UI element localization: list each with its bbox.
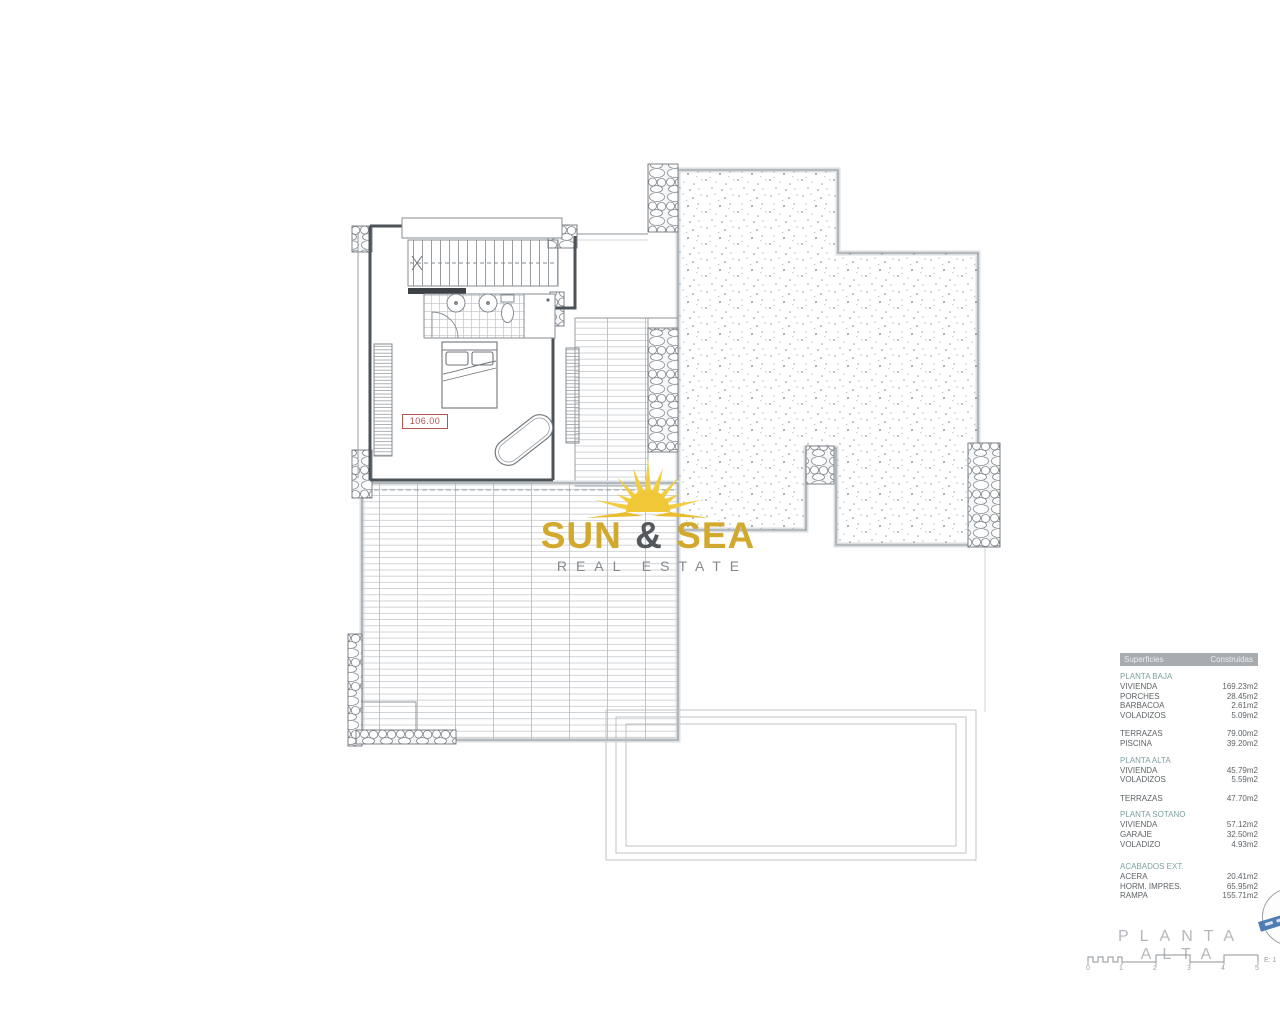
table-row: PORCHES28.45m2 (1120, 692, 1258, 702)
staircase (402, 218, 562, 294)
table-section-terrazas-alta: TERRAZAS47.70m2 (1120, 794, 1258, 804)
areas-table: Superficies Construidas PLANTA BAJA VIVI… (1120, 653, 1258, 901)
row-label: TERRAZAS (1120, 729, 1163, 739)
table-row: ACERA20.41m2 (1120, 872, 1258, 882)
sink-icon (447, 294, 465, 312)
row-label: VOLADIZOS (1120, 775, 1166, 785)
table-row: TERRAZAS79.00m2 (1120, 729, 1258, 739)
table-row: HORM. IMPRES.65.95m2 (1120, 882, 1258, 892)
row-label: VOLADIZO (1120, 840, 1160, 850)
row-label: BARBACOA (1120, 701, 1164, 711)
scale-tick-label: 0 (1086, 965, 1090, 972)
row-label: GARAJE (1120, 830, 1152, 840)
logo-word-sun: SUN (541, 515, 622, 556)
scale-tick-label: 3 (1187, 965, 1191, 972)
table-row: RAMPA155.71m2 (1120, 891, 1258, 901)
stair-landing-strip (408, 288, 466, 294)
row-value: 169.23m2 (1222, 682, 1258, 692)
scale-tick-label: 2 (1153, 965, 1157, 972)
row-label: PORCHES (1120, 692, 1160, 702)
sun-icon (540, 452, 756, 518)
room-area-label: 106.00 (402, 414, 448, 429)
row-value: 65.95m2 (1227, 882, 1258, 892)
scale-ratio-label: E: 1 (1264, 957, 1280, 964)
row-label: ACERA (1120, 872, 1148, 882)
row-value: 47.70m2 (1227, 794, 1258, 804)
table-row: VOLADIZOS5.09m2 (1120, 711, 1258, 721)
row-value: 57.12m2 (1227, 820, 1258, 830)
logo-wordmark: SUN & SEA (540, 517, 756, 555)
watermark-logo: SUN & SEA REAL ESTATE (540, 452, 756, 574)
sink-icon (479, 294, 497, 312)
section-title: ACABADOS EXT. (1120, 862, 1258, 872)
row-label: VIVIENDA (1120, 682, 1157, 692)
section-title: PLANTA BAJA (1120, 672, 1258, 682)
row-value: 20.41m2 (1227, 872, 1258, 882)
table-section-terrazas-baja: TERRAZAS79.00m2 PISCINA39.20m2 (1120, 729, 1258, 748)
table-row: VIVIENDA45.79m2 (1120, 766, 1258, 776)
row-value: 4.93m2 (1231, 840, 1258, 850)
scale-tick-label: 4 (1221, 965, 1225, 972)
col-superficies: Superficies (1124, 655, 1164, 664)
bathroom (424, 294, 555, 338)
table-row: VOLADIZOS5.59m2 (1120, 775, 1258, 785)
logo-tagline: REAL ESTATE (540, 558, 756, 574)
table-section-planta-alta: PLANTA ALTA VIVIENDA45.79m2 VOLADIZOS5.5… (1120, 756, 1258, 785)
toilet-icon (501, 295, 514, 323)
col-construidas: Construidas (1210, 655, 1253, 664)
logo-word-sea: SEA (676, 515, 755, 556)
row-label: VIVIENDA (1120, 820, 1157, 830)
table-row: PISCINA39.20m2 (1120, 739, 1258, 749)
bed-icon (442, 342, 497, 408)
table-row: VIVIENDA57.12m2 (1120, 820, 1258, 830)
row-value: 155.71m2 (1222, 891, 1258, 901)
row-value: 28.45m2 (1227, 692, 1258, 702)
table-row: BARBACOA2.61m2 (1120, 701, 1258, 711)
scale-tick-label: 5 (1255, 965, 1259, 972)
row-label: VIVIENDA (1120, 766, 1157, 776)
section-title: PLANTA SOTANO (1120, 810, 1258, 820)
row-value: 5.09m2 (1231, 711, 1258, 721)
row-label: HORM. IMPRES. (1120, 882, 1182, 892)
row-label: RAMPA (1120, 891, 1148, 901)
table-row: GARAJE32.50m2 (1120, 830, 1258, 840)
logo-ampersand: & (633, 515, 665, 556)
row-value: 2.61m2 (1231, 701, 1258, 711)
table-section-planta-baja: PLANTA BAJA VIVIENDA169.23m2 PORCHES28.4… (1120, 672, 1258, 720)
section-title: PLANTA ALTA (1120, 756, 1258, 766)
row-label: PISCINA (1120, 739, 1152, 749)
table-row: VIVIENDA169.23m2 (1120, 682, 1258, 692)
row-value: 5.59m2 (1231, 775, 1258, 785)
connector-walls (577, 234, 678, 318)
areas-table-header: Superficies Construidas (1120, 653, 1258, 666)
row-value: 32.50m2 (1227, 830, 1258, 840)
row-value: 45.79m2 (1227, 766, 1258, 776)
shower-drain-icon (546, 298, 549, 301)
table-row: TERRAZAS47.70m2 (1120, 794, 1258, 804)
page: 106.00 SUN & SEA REAL ESTATE Superficies (0, 0, 1280, 1024)
table-row: VOLADIZO4.93m2 (1120, 840, 1258, 850)
scale-tick-label: 1 (1119, 965, 1123, 972)
scale-ticks: 0 1 2 3 4 5 (1086, 965, 1272, 975)
row-label: VOLADIZOS (1120, 711, 1166, 721)
table-section-acabados: ACABADOS EXT. ACERA20.41m2 HORM. IMPRES.… (1120, 862, 1258, 901)
row-value: 39.20m2 (1227, 739, 1258, 749)
row-label: TERRAZAS (1120, 794, 1163, 804)
table-section-planta-sotano: PLANTA SOTANO VIVIENDA57.12m2 GARAJE32.5… (1120, 810, 1258, 849)
row-value: 79.00m2 (1227, 729, 1258, 739)
